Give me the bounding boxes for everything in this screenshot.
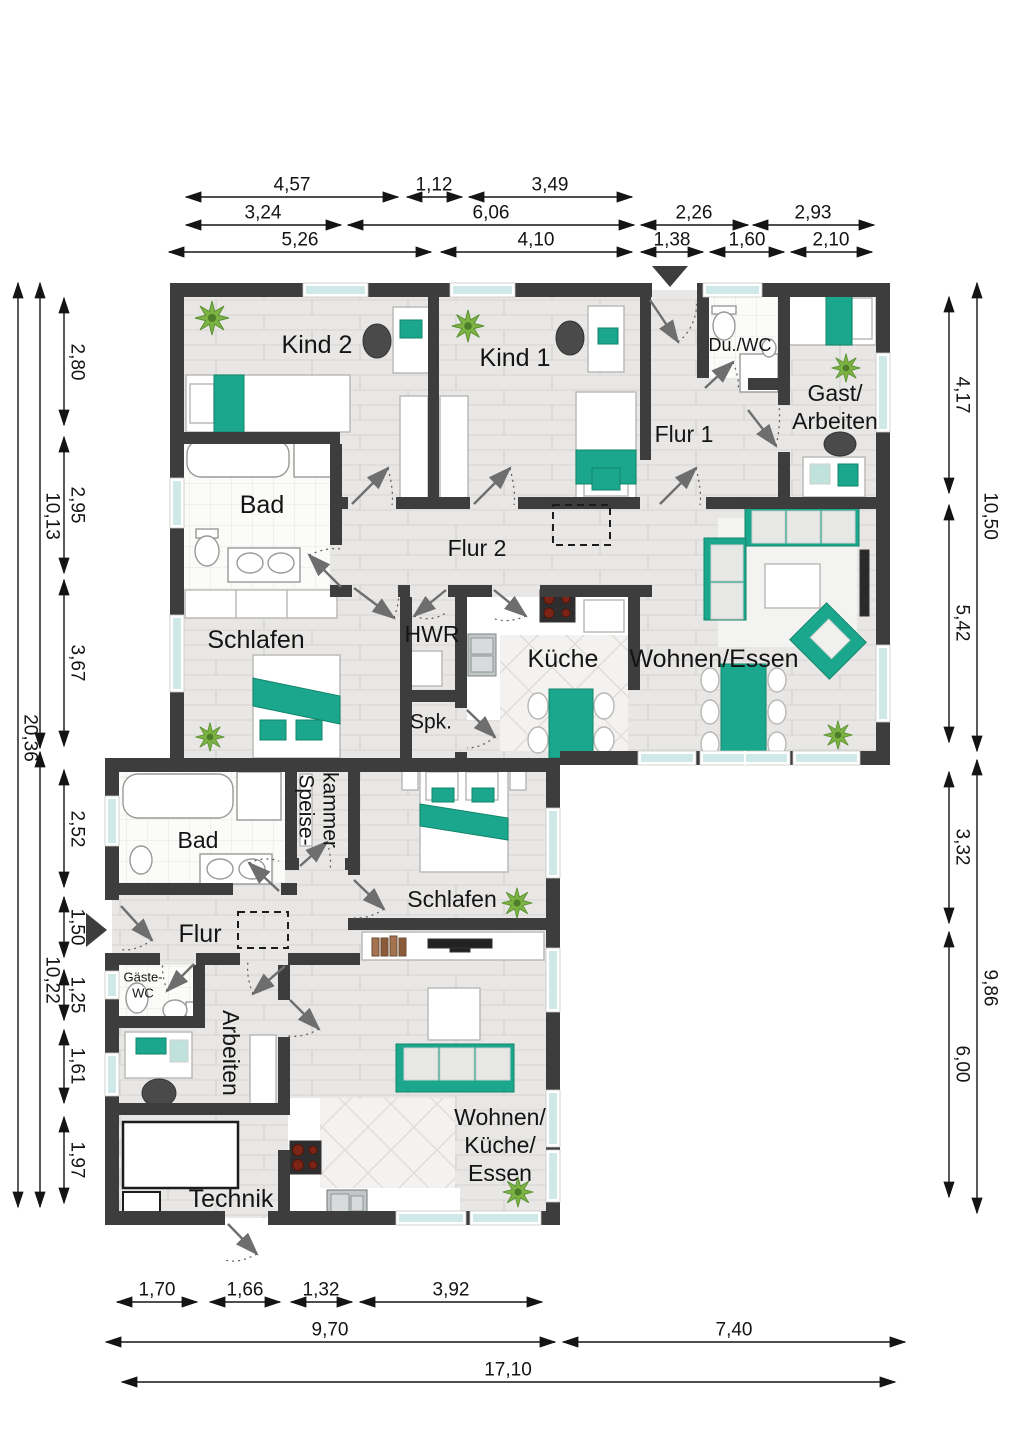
burner [293, 1160, 304, 1171]
window [793, 751, 860, 765]
room-label: Bad [240, 491, 284, 519]
coffee-table [765, 564, 820, 608]
room-label: Küche/ [464, 1132, 536, 1158]
table [428, 988, 480, 1040]
dimension: 1,97 [64, 1117, 88, 1203]
pillow-teal [260, 720, 286, 740]
desk [393, 307, 429, 373]
dim-label: 4,57 [274, 175, 311, 196]
window [876, 645, 890, 722]
cushion [440, 1048, 474, 1080]
washing-machine [408, 651, 442, 686]
room-label: Gast/ [808, 380, 864, 406]
window [546, 1150, 560, 1202]
dim-label: 10,50 [980, 492, 1001, 540]
dimension: 2,95 [64, 437, 88, 573]
floor-lower-kitchen-tiles [320, 1098, 455, 1188]
dim-label: 3,49 [532, 175, 569, 196]
room-label: Küche [528, 645, 599, 673]
dimension: 2,26 [641, 203, 748, 226]
dim-label: 1,97 [67, 1142, 88, 1179]
desk-items [838, 464, 858, 486]
burner [562, 609, 570, 617]
pillow [852, 298, 872, 339]
kitchen-cupboard [584, 600, 624, 632]
dimension: 3,32 [949, 772, 973, 923]
room-label: HWR [405, 621, 460, 647]
room-label: Gäste- [123, 970, 162, 985]
window [546, 1090, 560, 1147]
room-label: Wohnen/Essen [629, 645, 798, 673]
room-label: WC [132, 986, 154, 1001]
window [170, 615, 184, 692]
dimension: 3,49 [469, 175, 632, 198]
dimension: 2,52 [64, 770, 88, 887]
cushion [711, 545, 743, 581]
dim-label: 3,92 [433, 1280, 470, 1301]
room-label: Flur 2 [448, 535, 507, 561]
dimension: 10,13 [40, 283, 63, 748]
dimension: 10,22 [40, 752, 63, 1207]
cushion [752, 511, 785, 543]
window [105, 1053, 119, 1096]
dim-label: 9,86 [980, 970, 1001, 1007]
dim-label: 20,36 [20, 714, 41, 762]
room-label: Essen [468, 1160, 532, 1186]
plant-icon [832, 354, 861, 383]
room-label: Arbeiten [218, 1010, 244, 1096]
burner [309, 1146, 317, 1154]
dimension: 10,50 [977, 283, 1001, 751]
chair [528, 693, 548, 719]
dim-label: 3,24 [245, 203, 282, 224]
book [399, 938, 406, 956]
floor-plan-page: Kind 2 Kind 1 Du./WC Gast/ Arbeiten Flur… [0, 0, 1018, 1440]
plant-icon [502, 888, 533, 919]
entrance-arrow-icon [652, 266, 688, 287]
laptop [400, 320, 422, 338]
dim-label: 2,26 [676, 203, 713, 224]
window [105, 971, 119, 999]
office-chair [556, 321, 584, 355]
plant-icon [196, 723, 225, 752]
plant-icon [452, 310, 484, 342]
door-swing [225, 1224, 257, 1261]
dimension: 4,57 [186, 175, 398, 198]
terrace-door [700, 751, 790, 765]
cushion [711, 583, 743, 619]
dimension: 1,70 [117, 1280, 197, 1303]
window [546, 948, 560, 1012]
window [638, 751, 696, 765]
office-chair [363, 324, 391, 358]
window [170, 478, 184, 528]
dim-label: 3,32 [952, 829, 973, 866]
dim-label: 10,13 [42, 492, 63, 540]
room-label: Technik [189, 1185, 274, 1213]
blanket [214, 375, 244, 432]
window [876, 353, 890, 432]
cushion [787, 511, 820, 543]
dim-label: 7,40 [716, 1320, 753, 1341]
room-label: Schlafen [407, 886, 497, 912]
plant-icon [195, 301, 229, 335]
dim-label: 4,17 [952, 377, 973, 414]
room-label: Wohnen/ [454, 1104, 546, 1130]
dim-label: 1,61 [67, 1048, 88, 1085]
book [381, 938, 388, 956]
chair [768, 700, 786, 724]
laptop [136, 1038, 166, 1054]
dim-label: 1,38 [654, 230, 691, 251]
dimension: 3,67 [64, 580, 88, 746]
dim-label: 1,25 [67, 977, 88, 1014]
window [105, 796, 119, 846]
wardrobe [400, 396, 428, 498]
dim-label: 2,93 [795, 203, 832, 224]
dimension: 9,70 [106, 1320, 555, 1343]
shelf [250, 1035, 276, 1108]
papers [598, 328, 618, 344]
dim-label: 1,12 [416, 175, 453, 196]
plant-icon [824, 721, 853, 750]
dimension: 6,06 [348, 203, 634, 226]
tv [860, 550, 869, 616]
dim-label: 5,42 [952, 605, 973, 642]
dimension: 1,50 [64, 897, 88, 957]
dining-table [549, 689, 593, 758]
room-label: Schlafen [207, 626, 304, 654]
book [390, 936, 397, 956]
dimension: 9,86 [977, 760, 1001, 1213]
shower [237, 772, 281, 820]
dim-label: 4,10 [518, 230, 555, 251]
dimension: 4,10 [441, 230, 632, 253]
room-label: Spk. [410, 711, 452, 734]
dimension: 20,36 [18, 283, 41, 1207]
window [546, 808, 560, 878]
sink-basin [471, 638, 493, 654]
dim-label: 1,60 [729, 230, 766, 251]
dimension: 1,38 [641, 230, 703, 253]
pillow-teal [592, 468, 620, 490]
dimension: 7,40 [563, 1320, 905, 1343]
dim-label: 6,06 [473, 203, 510, 224]
blanket [826, 292, 852, 345]
floor-plan-drawing: Kind 2 Kind 1 Du./WC Gast/ Arbeiten Flur… [0, 0, 1018, 1440]
dimension: 1,12 [407, 175, 462, 198]
room-label: Arbeiten [792, 408, 878, 434]
dimension: 2,80 [64, 298, 88, 425]
dimension: 5,26 [169, 230, 431, 253]
dimension: 2,93 [753, 203, 874, 226]
tv-stand [450, 948, 470, 952]
wardrobe [185, 590, 337, 618]
dim-label: 5,26 [282, 230, 319, 251]
dim-label: 2,95 [67, 487, 88, 524]
dimension: 1,60 [710, 230, 784, 253]
cushion [476, 1048, 510, 1080]
cushion [404, 1048, 438, 1080]
technik-unit [123, 1122, 238, 1188]
sink-basin [331, 1194, 349, 1213]
cushion [822, 511, 855, 543]
pillow-teal [432, 788, 454, 802]
dining-table [721, 664, 766, 758]
dimension: 1,32 [291, 1280, 352, 1303]
room-label: Flur [178, 920, 221, 948]
window [470, 1211, 541, 1225]
burner [544, 608, 554, 618]
pillow-teal [472, 788, 494, 802]
bathtub [123, 774, 233, 818]
dim-label: 2,52 [67, 811, 88, 848]
wardrobe [440, 396, 468, 498]
pillow [190, 384, 214, 423]
sink [207, 859, 233, 879]
lower-counter-bottom [288, 1188, 460, 1211]
paper [170, 1040, 188, 1062]
dimension: 1,25 [64, 970, 88, 1020]
dimension: 5,42 [949, 505, 973, 742]
dimension: 4,17 [949, 297, 973, 493]
window [703, 283, 762, 297]
sink [237, 553, 263, 573]
window [450, 283, 515, 297]
chair [594, 693, 614, 719]
dim-label: 1,32 [303, 1280, 340, 1301]
dimension: 1,66 [210, 1280, 280, 1303]
dim-label: 2,80 [67, 344, 88, 381]
technik-unit-small [123, 1192, 160, 1212]
dim-label: 1,66 [227, 1280, 264, 1301]
toilet [130, 846, 152, 874]
room-label: Du./WC [709, 335, 772, 355]
window [303, 283, 368, 297]
dim-label: 6,00 [952, 1046, 973, 1083]
dimension: 6,00 [949, 932, 973, 1197]
bathtub [187, 440, 289, 477]
paper [810, 464, 830, 484]
room-label: Kind 2 [282, 331, 353, 359]
room-label: Bad [178, 827, 219, 853]
chair [701, 700, 719, 724]
office-chair [824, 432, 856, 456]
dimension: 2,10 [791, 230, 872, 253]
book [372, 938, 379, 956]
room-label: Flur 1 [655, 421, 714, 447]
tv [428, 939, 492, 948]
burner [293, 1145, 304, 1156]
dimension: 3,24 [186, 203, 341, 226]
pillow-teal [296, 720, 322, 740]
dim-label: 2,10 [813, 230, 850, 251]
chair [528, 727, 548, 753]
dim-label: 10,22 [42, 956, 63, 1004]
office-chair [142, 1079, 176, 1107]
sink [268, 553, 294, 573]
sink [239, 859, 265, 879]
window [396, 1211, 466, 1225]
dim-label: 1,50 [67, 909, 88, 946]
sink-basin [351, 1196, 363, 1211]
chair [594, 727, 614, 753]
dimension: 1,61 [64, 1030, 88, 1103]
burner [309, 1161, 317, 1169]
dimension: 17,10 [122, 1360, 895, 1383]
room-label: Kind 1 [480, 344, 551, 372]
dimension: 3,92 [360, 1280, 542, 1303]
room-label: Speise- [295, 774, 318, 845]
dim-label: 3,67 [67, 645, 88, 682]
toilet [195, 536, 219, 566]
dim-label: 17,10 [484, 1360, 532, 1381]
entrance-arrow-icon [86, 913, 107, 947]
dim-label: 1,70 [139, 1280, 176, 1301]
dim-label: 9,70 [312, 1320, 349, 1341]
sink-basin [471, 656, 493, 672]
room-label: kammer [319, 772, 342, 848]
